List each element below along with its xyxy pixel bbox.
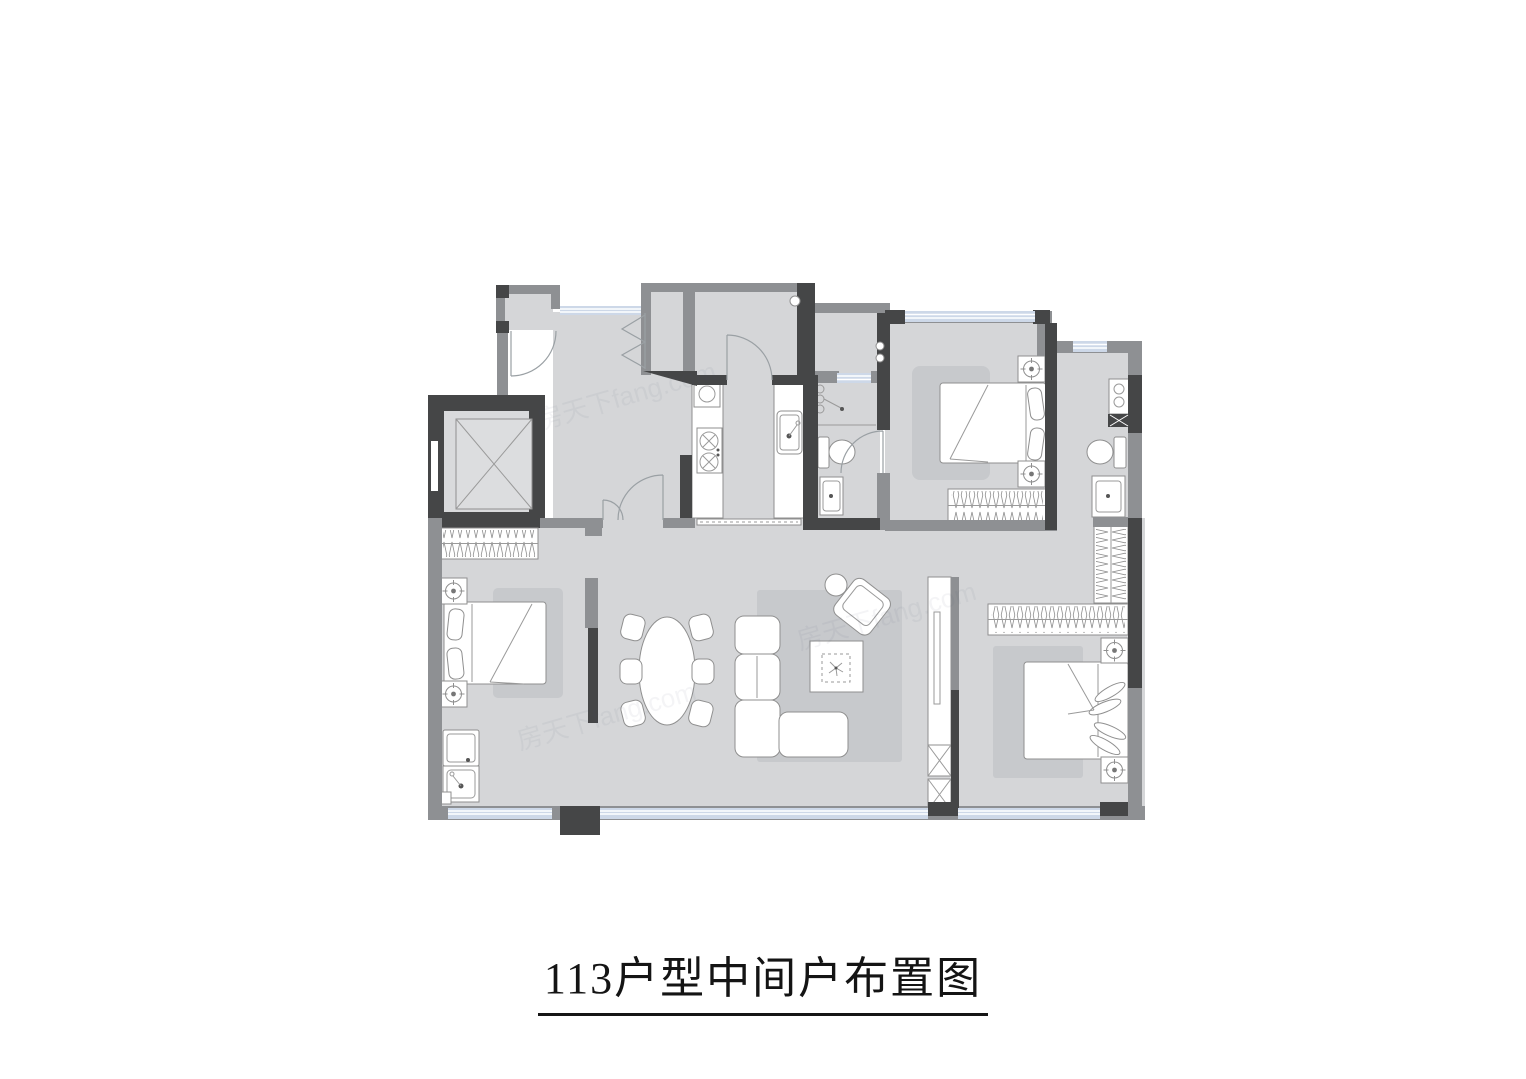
bed	[444, 602, 546, 684]
wardrobe	[948, 489, 1046, 522]
window	[600, 808, 928, 819]
window	[1073, 341, 1107, 352]
vanity-sink	[1092, 476, 1125, 517]
water-heater	[1109, 379, 1130, 414]
door-stop	[790, 296, 800, 306]
side-table	[825, 574, 847, 596]
window	[560, 306, 641, 315]
nightstand	[440, 681, 467, 707]
kitchen-sliding-door	[697, 519, 801, 525]
window	[837, 373, 871, 383]
plan-title: 113户型中间户布置图	[538, 942, 988, 1016]
bed	[1024, 662, 1128, 759]
floor-plan-page: 房天下fang.com 房天下fang.com 房天下fang.com 113户…	[0, 0, 1526, 1079]
washing-machine	[443, 730, 479, 766]
window	[905, 311, 1035, 322]
nightstand	[1018, 461, 1045, 487]
nightstand	[1101, 638, 1128, 663]
stove	[697, 428, 722, 473]
wardrobe	[440, 528, 538, 559]
dining-chair	[692, 659, 714, 684]
laundry-sink	[438, 766, 479, 804]
nightstand	[440, 578, 467, 604]
window	[448, 808, 552, 819]
vanity-sink	[820, 477, 843, 515]
window	[958, 808, 1100, 819]
closet	[1094, 526, 1128, 603]
wardrobe	[988, 604, 1128, 635]
nightstand	[1018, 356, 1045, 382]
bed	[940, 383, 1046, 463]
entry-door	[511, 331, 556, 376]
floor-plan: 房天下fang.com 房天下fang.com 房天下fang.com	[0, 0, 1526, 1079]
title-bar: 113户型中间户布置图	[0, 942, 1526, 1016]
kitchen-sink	[777, 411, 802, 454]
nightstand	[1101, 757, 1128, 783]
dining-chair	[620, 659, 642, 684]
